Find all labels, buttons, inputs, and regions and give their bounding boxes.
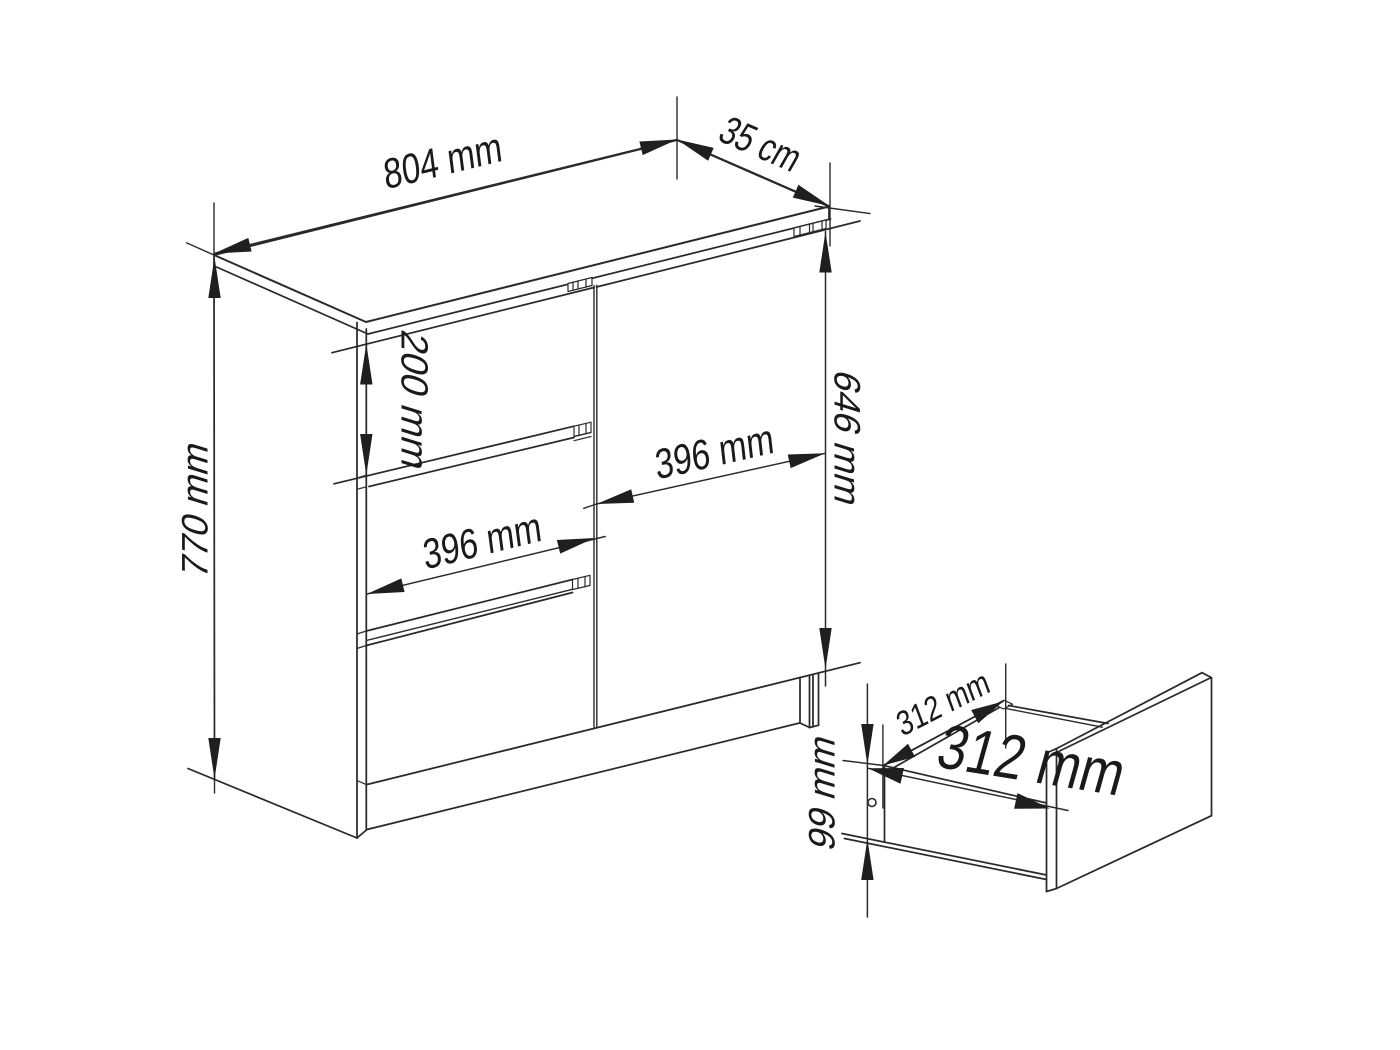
svg-text:99 mm: 99 mm: [802, 730, 843, 856]
svg-text:770 mm: 770 mm: [175, 436, 216, 582]
svg-text:646 mm: 646 mm: [826, 365, 867, 511]
svg-text:200 mm: 200 mm: [393, 326, 435, 476]
